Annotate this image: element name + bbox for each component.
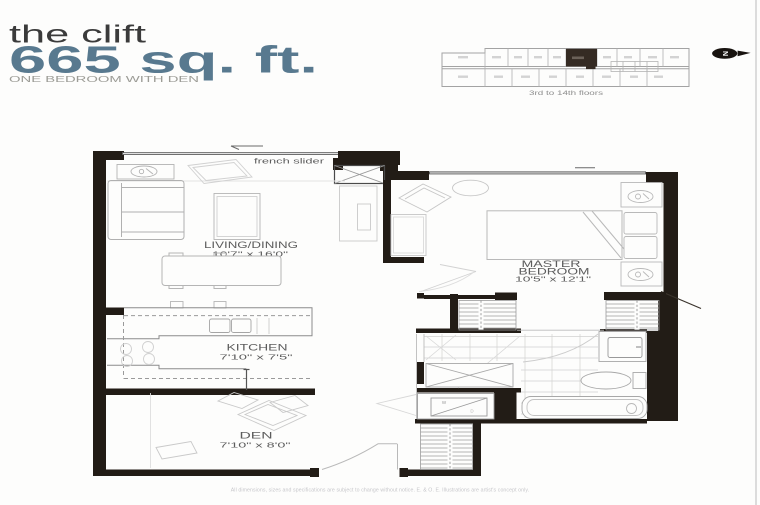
svg-text:10'7" x 16'0": 10'7" x 16'0" [212, 250, 289, 259]
svg-text:10'5" x 12'1": 10'5" x 12'1" [515, 275, 592, 284]
svg-text:All dimensions, sizes and spec: All dimensions, sizes and specifications… [231, 488, 529, 494]
svg-text:7'10" x 8'0": 7'10" x 8'0" [220, 441, 292, 450]
svg-text:3rd to 14th floors: 3rd to 14th floors [529, 90, 604, 97]
svg-text:LIVING/DINING: LIVING/DINING [204, 240, 298, 250]
svg-text:N: N [721, 51, 728, 56]
svg-text:KITCHEN: KITCHEN [227, 343, 288, 353]
svg-text:DEN: DEN [240, 431, 273, 441]
svg-text:french slider: french slider [254, 157, 325, 166]
svg-text:ONE BEDROOM WITH DEN: ONE BEDROOM WITH DEN [9, 75, 199, 84]
svg-text:7'10" x 7'5": 7'10" x 7'5" [220, 353, 294, 362]
